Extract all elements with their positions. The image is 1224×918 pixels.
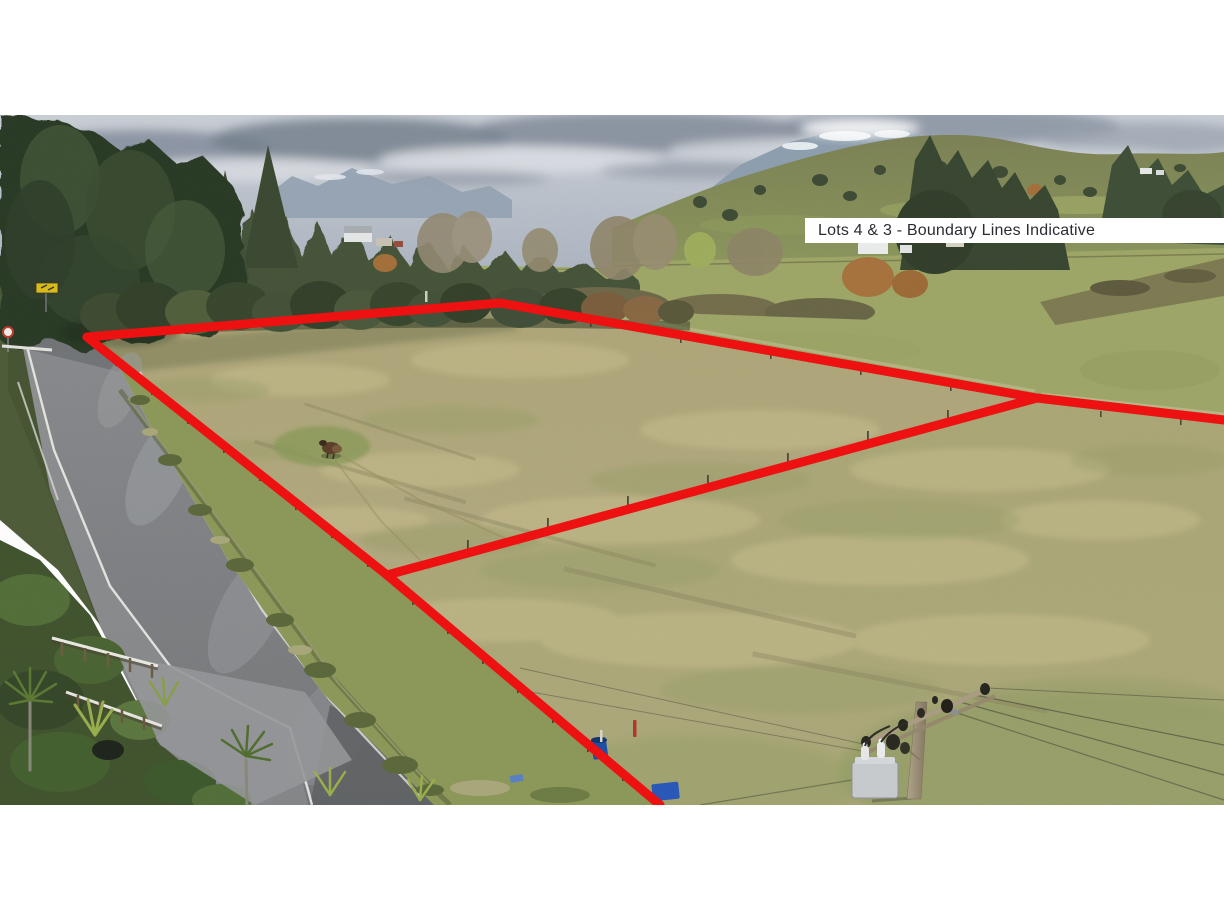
aerial-photo (0, 0, 1224, 918)
lot-label-banner: Lots 4 & 3 - Boundary Lines Indicative (805, 218, 1224, 243)
letterbox-bottom (0, 805, 1224, 918)
lot-label-text: Lots 4 & 3 - Boundary Lines Indicative (818, 222, 1095, 240)
letterbox-top (0, 0, 1224, 115)
screenshot-root: Lots 4 & 3 - Boundary Lines Indicative (0, 0, 1224, 918)
